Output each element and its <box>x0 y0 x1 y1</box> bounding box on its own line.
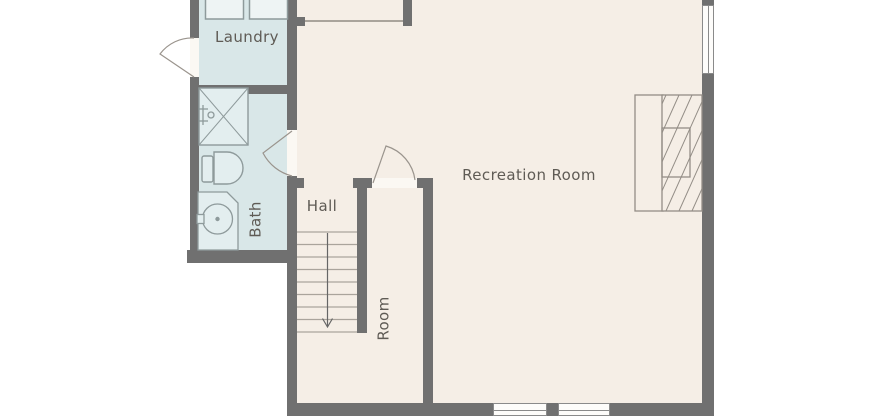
room-door <box>373 146 415 183</box>
shower-icon <box>199 88 248 145</box>
sink-vanity-icon <box>197 192 238 250</box>
bath-label: Bath <box>247 190 266 250</box>
washer-icon <box>206 0 244 19</box>
fireplace-icon <box>601 95 744 211</box>
bath-door <box>263 131 292 176</box>
room-label: Room <box>375 289 394 349</box>
fixtures-layer <box>0 0 870 420</box>
laundry-label: Laundry <box>200 28 294 47</box>
recreation-room-label: Recreation Room <box>429 166 629 185</box>
dryer-icon <box>250 0 288 19</box>
laundry-exterior-door <box>160 38 194 77</box>
toilet-icon <box>202 152 243 184</box>
floor-plan: Laundry Bath Hall Room Recreation Room <box>0 0 870 420</box>
down-arrow-icon <box>323 233 333 327</box>
hall-label: Hall <box>292 197 352 216</box>
